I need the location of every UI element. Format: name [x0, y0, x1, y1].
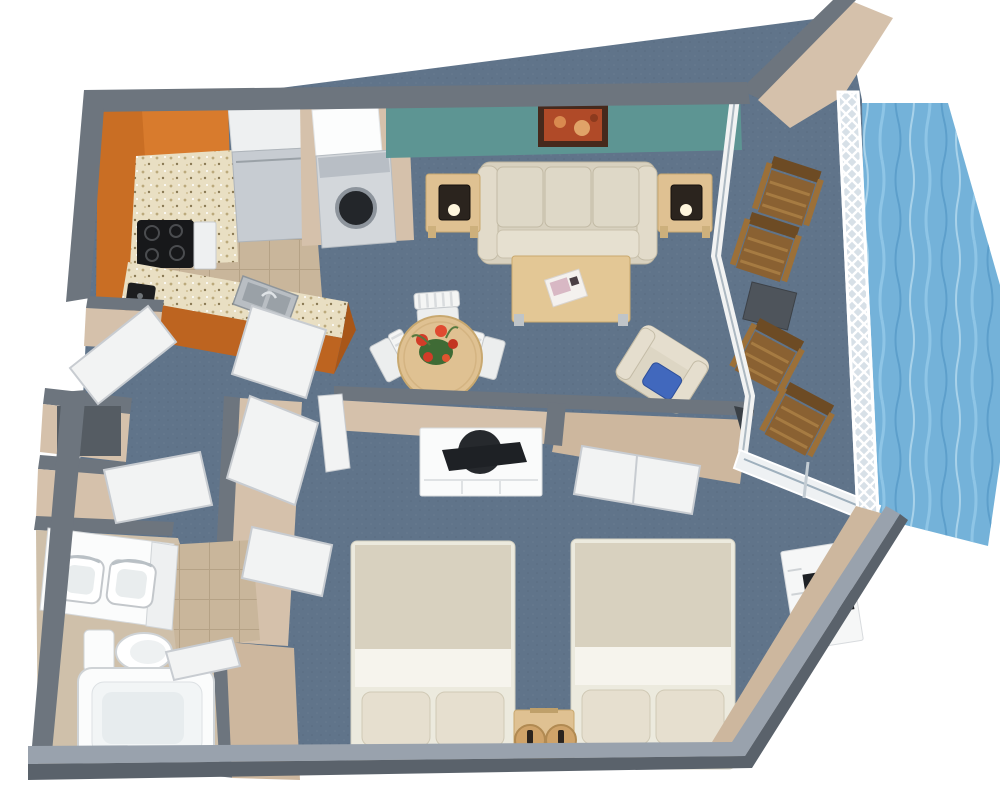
- sofa: [478, 162, 657, 264]
- wall-art: [538, 103, 608, 147]
- bed-1: [347, 541, 519, 771]
- floor-plan-image: [0, 0, 1000, 789]
- sofa-seat-front: [497, 230, 639, 258]
- bed-1-pillow-right: [436, 692, 504, 746]
- washer-door: [337, 189, 375, 227]
- oven-front: [194, 222, 216, 269]
- table-lamp-right: [671, 185, 702, 220]
- bed-2: [567, 539, 739, 769]
- toilet: [84, 630, 172, 672]
- floor-plan-svg: [0, 0, 1000, 789]
- table-lamp-left: [439, 185, 470, 220]
- tv-stand: [420, 428, 542, 496]
- bed-1-duvet: [355, 545, 511, 651]
- bed-1-pillow-left: [362, 692, 430, 746]
- bed-1-sheet: [355, 649, 511, 687]
- coffee-table: [512, 256, 630, 326]
- sofa-armrest-right: [637, 166, 657, 260]
- bed-2-pillow-right: [656, 690, 724, 744]
- stove-cooktop: [137, 220, 216, 269]
- sofa-armrest-left: [478, 166, 498, 260]
- refrigerator: [228, 102, 310, 242]
- bed-2-pillow-left: [582, 690, 650, 744]
